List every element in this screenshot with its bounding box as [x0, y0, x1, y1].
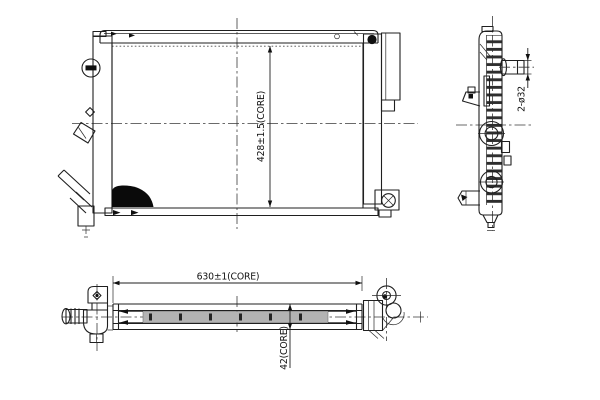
core-width-label: 630±1(CORE)	[197, 272, 260, 283]
side-lower-bracket	[458, 191, 480, 205]
dimension-core-height: 428±1.5(CORE)	[256, 46, 272, 207]
core-depth-label: 42(CORE)	[279, 326, 290, 370]
radiator-technical-drawing: 428±1.5(CORE) 2-ø32	[0, 0, 600, 400]
right-tank-cap-dot	[367, 35, 376, 44]
side-ribs	[487, 35, 502, 205]
dimension-pipe-diameter: 2-ø32	[517, 48, 532, 112]
filler-cap	[82, 59, 100, 77]
bottom-right-fitting	[364, 278, 421, 341]
drawing-canvas: 428±1.5(CORE) 2-ø32	[0, 0, 600, 400]
inlet-pipe	[499, 59, 534, 76]
dimension-core-width: 630±1(CORE)	[113, 272, 362, 304]
core-strip	[113, 304, 362, 330]
core-height-label: 428±1.5(CORE)	[256, 91, 267, 162]
front-right-tank	[364, 34, 382, 204]
bottom-left-fitting	[62, 284, 113, 351]
front-left-tank	[93, 36, 112, 213]
side-mid-bracket	[463, 87, 481, 106]
left-bottom-pipes	[58, 170, 94, 237]
front-core	[112, 43, 363, 208]
side-view: 2-ø32	[456, 16, 534, 231]
bottom-view: 630±1(CORE) 42(CORE)	[62, 272, 428, 370]
front-view: 428±1.5(CORE)	[58, 18, 418, 237]
front-bottom-tank	[105, 208, 378, 216]
pipe-diameter-label: 2-ø32	[517, 86, 528, 112]
left-mid-nozzle	[74, 123, 96, 144]
front-top-tank	[100, 31, 378, 44]
side-bottom-drain	[483, 215, 498, 231]
right-side-panel	[382, 33, 401, 100]
bottom-left-solid-region	[112, 185, 154, 207]
